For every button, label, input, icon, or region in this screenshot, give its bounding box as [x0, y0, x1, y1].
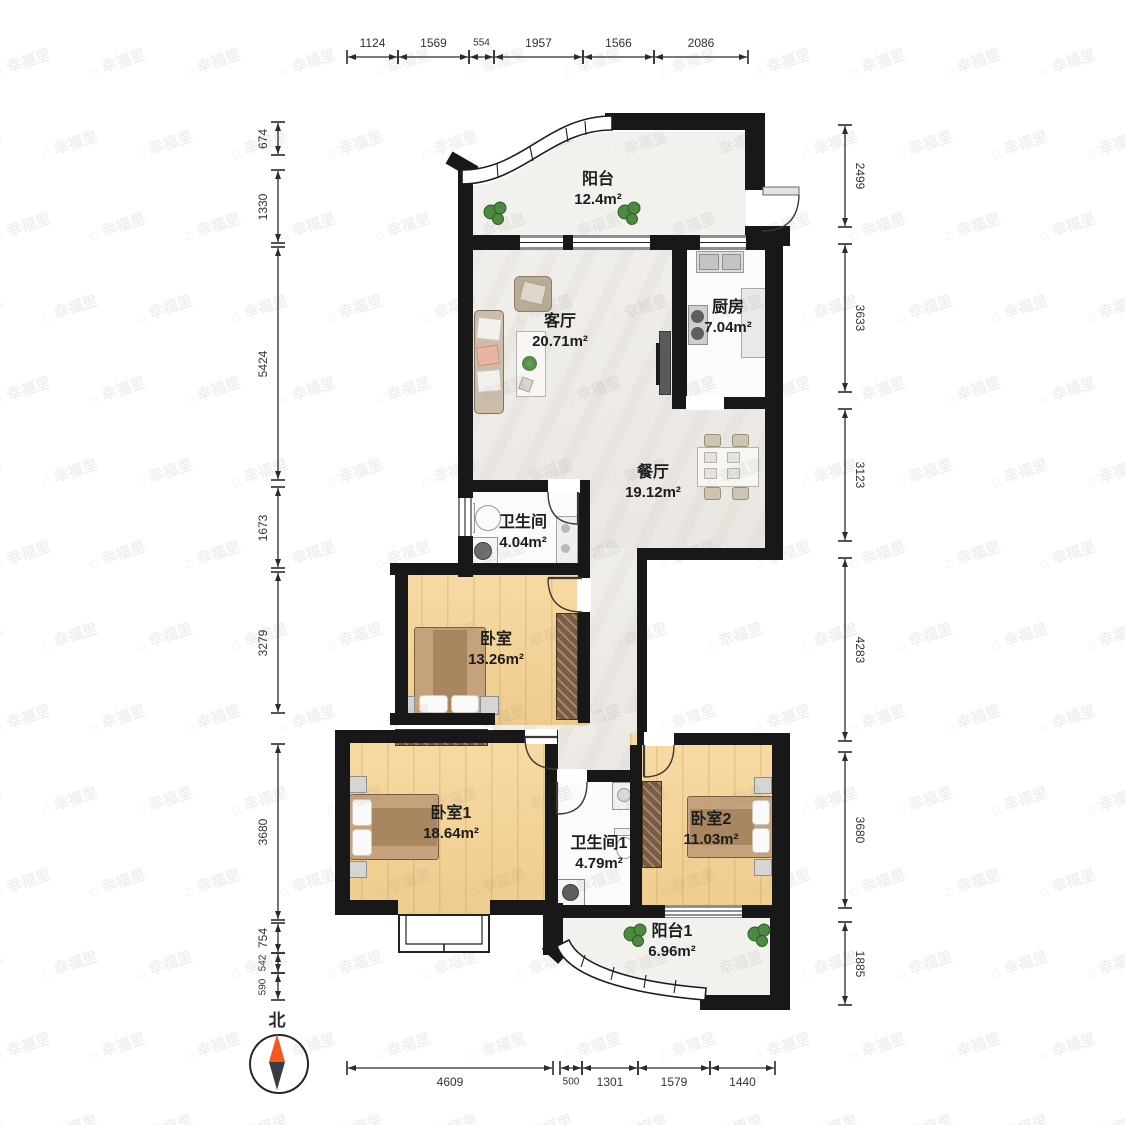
- dimension-line: [275, 488, 281, 496]
- room-label: 客厅20.71m²: [490, 312, 630, 352]
- dimension-line: [584, 54, 592, 60]
- room-area: 11.03m²: [641, 830, 781, 850]
- dimension-line: [275, 573, 281, 581]
- dimension-line: [573, 1065, 581, 1071]
- dimension-line: [766, 1065, 774, 1071]
- dimension-line: [275, 704, 281, 712]
- dimension-line: [389, 54, 397, 60]
- dimension-line: [275, 924, 281, 932]
- dimension-line: [842, 383, 848, 391]
- entry-door-arc: [762, 195, 799, 231]
- door-opening: [548, 479, 580, 493]
- dimension-line: [275, 954, 281, 962]
- dimension-line: [275, 471, 281, 479]
- north-label: 北: [257, 1006, 297, 1031]
- dimension-label: 1957: [525, 36, 552, 50]
- dimension-label: 1124: [360, 36, 386, 50]
- dimension-label: 4283: [853, 636, 867, 663]
- dimension-label: 3633: [853, 305, 867, 332]
- dimension-label: 1885: [853, 950, 867, 977]
- bathroom1-door-arc: [557, 782, 587, 814]
- dimension-line: [842, 996, 848, 1004]
- room-area: 6.96m²: [602, 942, 742, 962]
- dimension-line: [495, 54, 503, 60]
- door-opening: [557, 769, 587, 783]
- dimension-line: [275, 745, 281, 753]
- room-area: 7.04m²: [658, 318, 798, 338]
- room-name: 卧室1: [381, 804, 521, 824]
- compass-needle-north: [269, 1034, 285, 1062]
- dimension-label: 4609: [437, 1075, 464, 1089]
- dimension-label: 2086: [688, 36, 715, 50]
- dimension-line: [639, 1065, 647, 1071]
- dimension-label: 1330: [256, 193, 270, 220]
- dimension-line: [399, 54, 407, 60]
- room-area: 19.12m²: [583, 483, 723, 503]
- dimension-label: 3680: [853, 817, 867, 844]
- room-label: 卧室13.26m²: [426, 630, 566, 670]
- dimension-label: 1673: [256, 514, 270, 541]
- room-name: 厨房: [658, 298, 798, 318]
- dimension-line: [842, 532, 848, 540]
- dimension-label: 1440: [729, 1075, 756, 1089]
- room-area: 4.04m²: [453, 533, 593, 553]
- dimension-label: 1301: [597, 1075, 624, 1089]
- dimension-line: [842, 923, 848, 931]
- dimension-line: [275, 248, 281, 256]
- dimension-line: [645, 54, 653, 60]
- dimension-label: 542: [258, 955, 269, 972]
- dimension-label: 754: [256, 928, 270, 948]
- dimension-line: [485, 54, 493, 60]
- room-label: 餐厅19.12m²: [583, 463, 723, 503]
- dimension-line: [544, 1065, 552, 1071]
- dimension-line: [629, 1065, 637, 1071]
- dimension-line: [842, 899, 848, 907]
- floor-plan: ⌂ 幸福里⌂ 幸福里⌂ 幸福里⌂ 幸福里⌂ 幸福里⌂ 幸福里⌂ 幸福里⌂ 幸福里…: [0, 0, 1125, 1125]
- dimension-line: [275, 991, 281, 999]
- dimension-label: 554: [473, 38, 490, 49]
- dimension-label: 1569: [420, 36, 447, 50]
- dimension-line: [275, 974, 281, 982]
- room-label: 阳台12.4m²: [528, 170, 668, 210]
- room-area: 4.79m²: [529, 854, 669, 874]
- dimension-line: [842, 753, 848, 761]
- bay-window: [399, 915, 489, 952]
- dimension-label: 3279: [256, 629, 270, 656]
- dimension-label: 674: [256, 128, 270, 148]
- entry-door-leaf: [763, 187, 799, 195]
- dimension-label: 1579: [661, 1075, 688, 1089]
- room-name: 卧室: [426, 630, 566, 650]
- dimension-line: [275, 146, 281, 154]
- dimension-line: [348, 1065, 356, 1071]
- room-name: 卫生间: [453, 513, 593, 533]
- compass-needle-south: [269, 1062, 285, 1090]
- dimension-line: [701, 1065, 709, 1071]
- dimension-line: [275, 171, 281, 179]
- dimension-line: [842, 126, 848, 134]
- dimension-label: 3123: [853, 462, 867, 489]
- room-area: 12.4m²: [528, 190, 668, 210]
- room-label: 卧室211.03m²: [641, 810, 781, 850]
- room-label: 阳台16.96m²: [602, 922, 742, 962]
- dimension-label: 500: [563, 1077, 580, 1088]
- dimension-line: [842, 218, 848, 226]
- dimension-label: 590: [258, 978, 269, 995]
- room-name: 阳台1: [602, 922, 742, 942]
- room-area: 18.64m²: [381, 824, 521, 844]
- dimension-label: 2499: [853, 163, 867, 190]
- dimension-line: [348, 54, 356, 60]
- bedroom-door-arc: [548, 578, 582, 612]
- bedroom2-door-arc: [644, 745, 674, 777]
- dimension-line: [711, 1065, 719, 1071]
- dimension-line: [842, 732, 848, 740]
- dimension-label: 1566: [605, 36, 632, 50]
- dimension-line: [275, 944, 281, 952]
- door-opening: [644, 732, 674, 746]
- dimension-line: [739, 54, 747, 60]
- dimension-line: [561, 1065, 569, 1071]
- dimension-label: 5424: [256, 350, 270, 377]
- dimension-line: [842, 245, 848, 253]
- dimension-line: [842, 410, 848, 418]
- dimension-line: [275, 911, 281, 919]
- dimension-line: [275, 123, 281, 131]
- dimension-line: [842, 559, 848, 567]
- room-area: 13.26m²: [426, 650, 566, 670]
- plan-overlay: [0, 0, 1125, 1125]
- dimension-line: [275, 234, 281, 242]
- room-name: 卧室2: [641, 810, 781, 830]
- dimension-label: 3680: [256, 819, 270, 846]
- dimension-line: [574, 54, 582, 60]
- room-label: 厨房7.04m²: [658, 298, 798, 338]
- room-label: 卧室118.64m²: [381, 804, 521, 844]
- dimension-line: [470, 54, 478, 60]
- dimension-line: [460, 54, 468, 60]
- room-area: 20.71m²: [490, 332, 630, 352]
- room-name: 餐厅: [583, 463, 723, 483]
- room-name: 阳台: [528, 170, 668, 190]
- dimension-line: [275, 964, 281, 972]
- dimension-line: [275, 559, 281, 567]
- room-label: 卫生间4.04m²: [453, 513, 593, 553]
- door-opening: [686, 396, 724, 410]
- room-name: 客厅: [490, 312, 630, 332]
- dimension-line: [655, 54, 663, 60]
- door-opening: [577, 578, 591, 612]
- dimension-line: [583, 1065, 591, 1071]
